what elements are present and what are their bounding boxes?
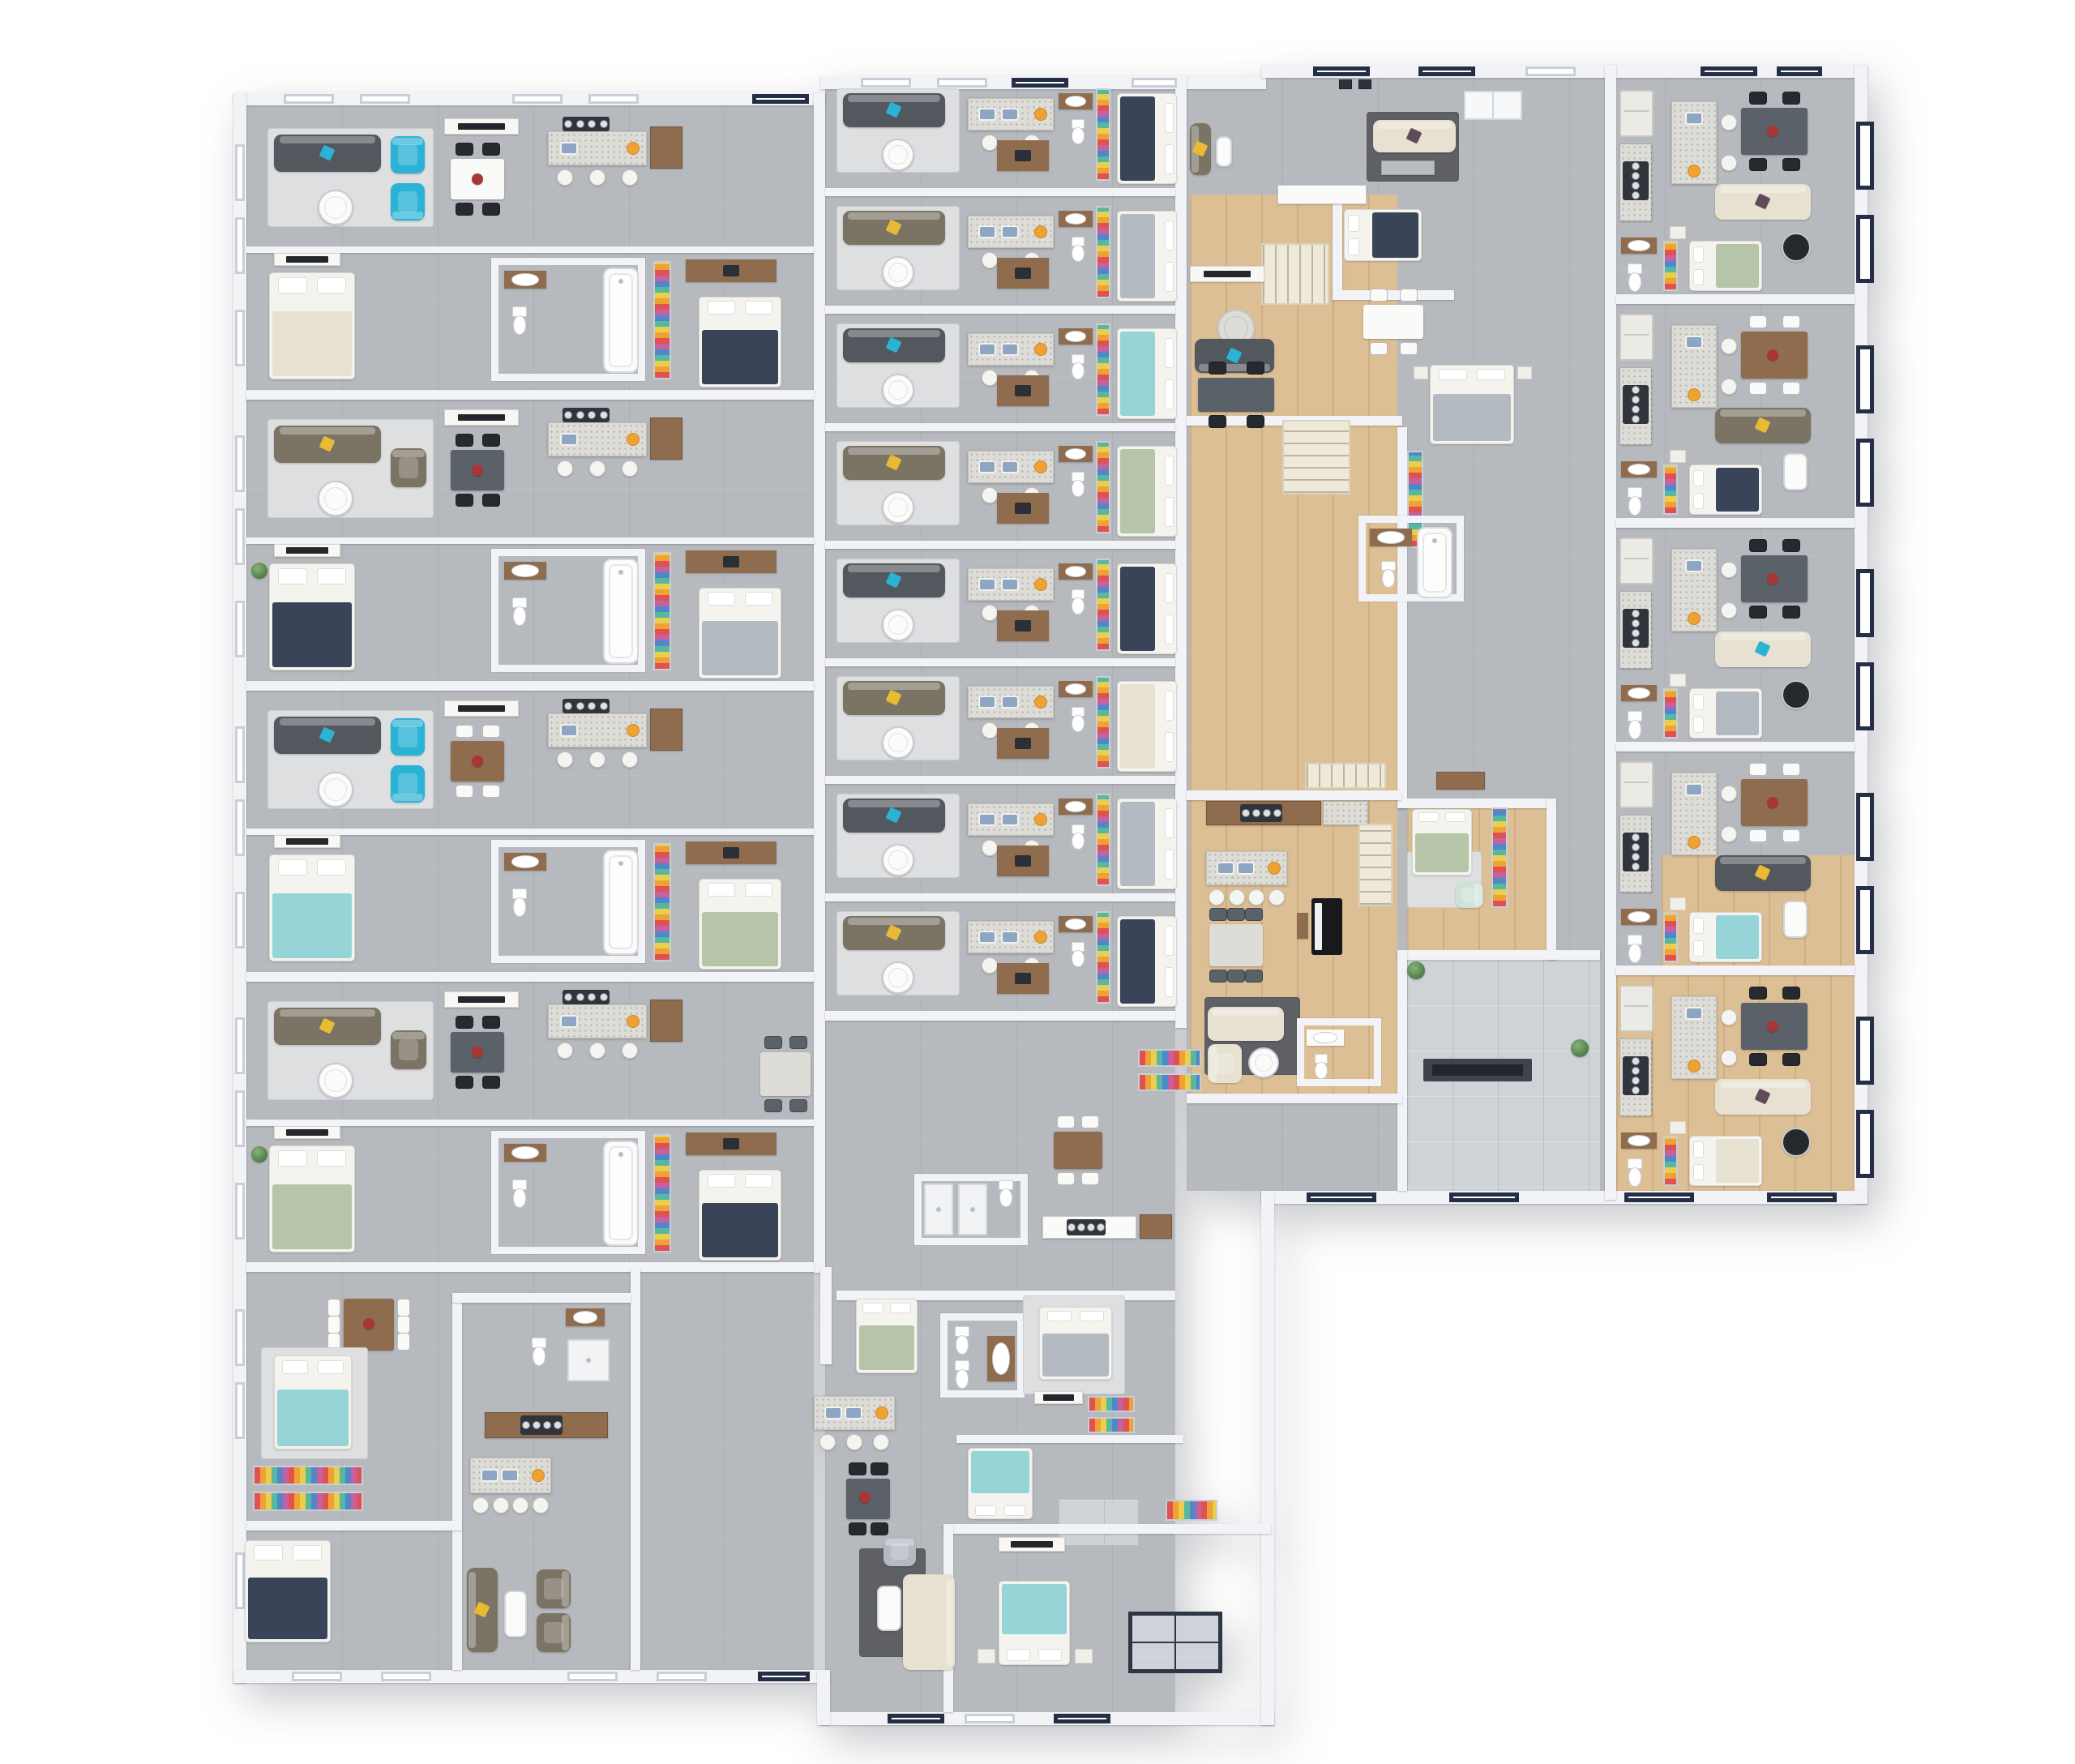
window	[1856, 793, 1874, 861]
nightstand	[1670, 1121, 1686, 1134]
nightstand	[1670, 226, 1686, 239]
bed	[1117, 916, 1177, 1007]
armchair	[1208, 1044, 1242, 1083]
cooktop	[563, 408, 610, 422]
tv-console	[274, 1126, 340, 1139]
wall	[1187, 790, 1401, 800]
wardrobe	[1464, 91, 1522, 120]
wall	[1616, 294, 1855, 304]
decor-accent	[859, 1492, 871, 1503]
window	[657, 1672, 707, 1681]
kitchen-island	[968, 568, 1054, 601]
closet-rack	[1663, 688, 1678, 739]
bed	[1412, 809, 1472, 876]
bed	[1344, 209, 1422, 261]
kitchen-island	[1671, 325, 1717, 408]
wall	[1616, 742, 1855, 751]
kitchen-island	[814, 1396, 895, 1430]
kitchen-island	[968, 98, 1054, 131]
desk	[686, 259, 777, 282]
wall	[825, 893, 1175, 901]
toilet	[509, 306, 530, 336]
sofa	[274, 717, 381, 754]
closet-rack	[1138, 1073, 1201, 1091]
kitchen-island	[548, 131, 647, 165]
window	[1307, 1192, 1376, 1202]
window	[1777, 66, 1822, 76]
dining-table	[760, 1052, 811, 1096]
vanity	[1370, 529, 1412, 546]
toilet	[509, 888, 530, 918]
sofa	[903, 1574, 955, 1670]
sofa	[1208, 1007, 1284, 1041]
dining-table	[1198, 378, 1274, 412]
kitchen-counter	[650, 1000, 682, 1042]
plant	[251, 563, 267, 579]
closet-rack	[1096, 441, 1110, 533]
window	[1012, 78, 1068, 88]
bed	[699, 879, 781, 970]
fridge	[1619, 985, 1654, 1032]
wall	[1605, 65, 1616, 1200]
wall	[825, 423, 1175, 431]
closet-rack	[1096, 559, 1110, 651]
window	[1856, 1017, 1874, 1085]
window	[861, 78, 911, 88]
piano	[1311, 898, 1342, 955]
tv-console	[444, 409, 519, 426]
bed	[1689, 1136, 1762, 1186]
vanity	[504, 271, 546, 289]
bed	[1430, 365, 1514, 444]
nightstand	[1075, 1649, 1093, 1663]
dining-table	[1209, 924, 1263, 966]
desk	[686, 550, 777, 573]
cooktop	[1240, 804, 1282, 822]
window	[235, 435, 245, 492]
sofa	[1715, 184, 1811, 220]
coffee-table	[877, 1586, 901, 1631]
window	[1313, 66, 1370, 76]
round-table	[882, 139, 914, 171]
round-table	[882, 374, 914, 406]
window	[512, 94, 563, 104]
window	[1132, 78, 1177, 88]
sofa	[843, 446, 945, 480]
window	[360, 94, 410, 104]
cooktop	[563, 699, 610, 713]
vanity	[1621, 238, 1657, 254]
bed	[1117, 681, 1177, 772]
round-table	[882, 726, 914, 759]
tv-console	[444, 118, 519, 135]
toilet	[952, 1360, 973, 1389]
bed	[999, 1581, 1070, 1665]
window	[1701, 66, 1757, 76]
window	[235, 310, 245, 366]
wall	[1175, 76, 1187, 1028]
kitchen-island	[968, 333, 1054, 366]
fridge	[1619, 314, 1654, 361]
closet-rack	[253, 1492, 363, 1511]
desk	[997, 846, 1049, 876]
vanity	[1059, 681, 1093, 697]
window	[381, 1672, 431, 1681]
closet-rack	[653, 843, 671, 961]
toilet	[1068, 354, 1088, 380]
nightstand	[1517, 366, 1532, 379]
window	[1525, 66, 1576, 76]
bed	[1689, 241, 1762, 291]
plant	[1407, 961, 1425, 979]
round-table	[1782, 1128, 1811, 1157]
sofa	[843, 681, 945, 715]
window	[235, 726, 245, 783]
armchair	[391, 1030, 426, 1069]
bathtub	[603, 268, 639, 373]
tv-console	[1436, 772, 1485, 790]
bed	[699, 1170, 781, 1261]
bathtub	[603, 1141, 639, 1246]
wall	[1547, 799, 1556, 960]
bed	[269, 272, 355, 379]
decor-accent	[472, 465, 483, 476]
closet-rack	[1096, 676, 1110, 769]
bed	[274, 1355, 352, 1449]
cooktop	[1623, 1056, 1649, 1095]
sofa	[843, 563, 945, 597]
glass-patio	[1128, 1612, 1222, 1673]
window	[1767, 1192, 1837, 1202]
vanity	[1059, 916, 1093, 932]
fridge	[1619, 537, 1654, 584]
wall	[246, 1521, 462, 1531]
wall	[943, 1524, 1271, 1534]
toilet	[1378, 561, 1399, 589]
decor-accent	[1767, 126, 1778, 137]
bed	[1117, 799, 1177, 889]
wall	[820, 1267, 832, 1364]
wall-art	[1339, 79, 1352, 89]
tv-console	[444, 700, 519, 717]
staircase	[1261, 243, 1329, 305]
toilet	[1068, 824, 1088, 850]
wall	[246, 1120, 814, 1126]
wall	[1616, 518, 1855, 528]
bathroom-walls	[1297, 1018, 1381, 1086]
vanity	[504, 562, 546, 580]
sofa	[1190, 123, 1211, 175]
tv-console	[274, 253, 340, 266]
sofa	[843, 211, 945, 245]
bed	[245, 1540, 331, 1642]
kitchen-island	[1671, 101, 1717, 184]
bathtub	[1417, 527, 1452, 598]
sofa	[274, 1008, 381, 1045]
sofa	[274, 426, 381, 463]
wall	[825, 658, 1175, 666]
nightstand	[1670, 674, 1686, 687]
window	[235, 1090, 245, 1147]
window	[235, 144, 245, 201]
armchair	[537, 1569, 571, 1608]
bed	[269, 563, 355, 670]
wall	[246, 537, 814, 544]
closet-rack	[1663, 465, 1678, 515]
nightstand	[1670, 897, 1686, 910]
window	[1856, 439, 1874, 507]
window	[1856, 215, 1874, 283]
round-table	[1782, 680, 1811, 709]
closet-rack	[653, 552, 671, 670]
sofa	[843, 328, 945, 362]
armchair	[883, 1537, 916, 1566]
wall-art	[1358, 79, 1371, 89]
kitchen-island	[548, 1004, 647, 1038]
nightstand	[1414, 366, 1428, 379]
sofa	[1715, 632, 1811, 667]
closet-rack	[653, 1134, 671, 1252]
decor-accent	[1767, 797, 1778, 808]
desk	[997, 728, 1049, 759]
window	[1856, 662, 1874, 730]
bed	[1117, 563, 1177, 654]
vanity	[987, 1336, 1015, 1381]
kitchen-island	[1671, 549, 1717, 632]
window	[1856, 886, 1874, 954]
sofa	[1715, 1079, 1811, 1115]
tv-console	[999, 1537, 1065, 1552]
toilet	[1068, 119, 1088, 145]
decor-accent	[363, 1318, 374, 1329]
wall	[1397, 799, 1556, 808]
dining-table	[1363, 305, 1423, 339]
wall	[956, 1435, 1183, 1443]
round-table	[882, 256, 914, 289]
toilet	[1068, 707, 1088, 733]
bed	[856, 1299, 918, 1373]
wall	[631, 1267, 640, 1670]
sofa	[467, 1568, 498, 1652]
cooktop	[1623, 833, 1649, 871]
round-table	[882, 491, 914, 524]
fridge	[1619, 761, 1654, 808]
armchair	[391, 136, 425, 173]
bed	[1689, 688, 1762, 739]
decor-accent	[472, 173, 483, 185]
desk	[686, 841, 777, 864]
sofa	[1715, 855, 1811, 891]
window	[235, 1552, 245, 1609]
wall	[817, 1670, 830, 1725]
wall	[246, 972, 814, 982]
vanity	[1307, 1030, 1344, 1046]
bed	[269, 854, 355, 961]
vanity	[566, 1308, 605, 1326]
decor-accent	[1767, 1021, 1778, 1032]
window	[965, 1714, 1015, 1723]
round-table	[318, 190, 353, 225]
decor-accent	[1767, 573, 1778, 584]
tv-console	[1034, 1391, 1083, 1404]
toilet	[1068, 942, 1088, 968]
vanity	[1621, 461, 1657, 477]
wall	[1397, 427, 1407, 808]
window	[588, 94, 639, 104]
cooktop	[1067, 1219, 1106, 1235]
tv-console	[1381, 161, 1435, 175]
vanity	[1059, 446, 1093, 462]
decor-accent	[472, 1047, 483, 1058]
bathtub	[603, 559, 639, 664]
vanity	[1059, 211, 1093, 227]
kitchen-counter	[1277, 185, 1367, 204]
nightstand	[978, 1649, 995, 1663]
window	[888, 1714, 944, 1723]
toilet	[995, 1180, 1016, 1208]
plant	[251, 1146, 267, 1162]
closet-rack	[1663, 241, 1678, 291]
vanity	[1621, 1132, 1657, 1149]
wall	[825, 188, 1175, 196]
window	[758, 1672, 810, 1681]
shower	[924, 1184, 953, 1235]
round-table	[1248, 1047, 1279, 1078]
vanity	[1621, 685, 1657, 701]
window	[937, 78, 987, 88]
closet-rack	[1138, 1049, 1201, 1067]
window	[1054, 1714, 1110, 1723]
toilet	[528, 1338, 550, 1367]
wall	[246, 1262, 814, 1272]
round-table	[882, 844, 914, 876]
window	[1856, 122, 1874, 190]
wall	[825, 541, 1175, 549]
closet-rack	[1096, 88, 1110, 181]
bed	[1039, 1307, 1112, 1380]
window	[235, 892, 245, 948]
toilet	[1068, 589, 1088, 615]
wall	[246, 681, 814, 691]
sofa	[843, 799, 945, 833]
wall	[825, 776, 1175, 784]
closet-rack	[1088, 1417, 1135, 1433]
vanity	[1621, 909, 1657, 925]
piano-bench	[1297, 913, 1308, 939]
sofa	[274, 135, 381, 172]
armchair	[391, 765, 425, 803]
coffee-table	[1783, 453, 1808, 490]
window	[235, 1382, 245, 1439]
toilet	[1624, 711, 1645, 740]
toilet	[1624, 487, 1645, 516]
wall	[1333, 203, 1342, 296]
kitchen-island	[968, 921, 1054, 953]
round-table	[1782, 233, 1811, 262]
staircase	[1305, 763, 1386, 789]
window	[235, 601, 245, 657]
sofa	[843, 93, 945, 127]
media-wall	[1423, 1059, 1532, 1081]
closet-rack	[1096, 323, 1110, 416]
window	[284, 94, 334, 104]
toilet	[1068, 237, 1088, 263]
bed	[1689, 465, 1762, 515]
closet-rack	[1663, 1136, 1678, 1186]
cooktop	[1623, 609, 1649, 648]
sofa	[1373, 120, 1456, 152]
bed	[699, 588, 781, 679]
coffee-table	[1783, 901, 1808, 938]
vanity	[504, 1144, 546, 1162]
wall	[1187, 1094, 1402, 1103]
closet-rack	[1096, 794, 1110, 886]
closet-rack	[653, 261, 671, 379]
window	[1856, 345, 1874, 413]
desk	[997, 610, 1049, 641]
window	[292, 1672, 342, 1681]
shower	[958, 1184, 987, 1235]
round-table	[318, 772, 353, 807]
window	[1449, 1192, 1519, 1202]
plant	[1571, 1039, 1589, 1057]
desk	[686, 1132, 777, 1155]
bed	[269, 1145, 355, 1252]
tv-console	[274, 544, 340, 557]
coffee-table	[1216, 136, 1232, 167]
closet-rack	[1491, 807, 1508, 908]
decor-accent	[472, 756, 483, 767]
kitchen-island	[968, 803, 1054, 836]
desk	[997, 493, 1049, 524]
window	[1856, 1110, 1874, 1178]
nightstand	[1670, 450, 1686, 463]
round-table	[318, 1063, 353, 1098]
cooktop	[520, 1415, 563, 1435]
tv-console	[274, 835, 340, 848]
window	[567, 1672, 618, 1681]
wall	[825, 1011, 1175, 1021]
armchair	[391, 718, 425, 756]
closet-rack	[1096, 206, 1110, 298]
round-table	[882, 961, 914, 994]
kitchen-island	[548, 713, 647, 747]
kitchen-island	[968, 686, 1054, 718]
kitchen-island	[1206, 851, 1287, 885]
decor-accent	[1767, 349, 1778, 361]
bed	[1117, 446, 1177, 537]
wall	[825, 306, 1175, 314]
bed	[699, 297, 781, 387]
wall	[246, 246, 814, 253]
window	[235, 799, 245, 856]
wall	[452, 1293, 631, 1303]
wall	[1397, 950, 1600, 960]
window	[235, 1183, 245, 1240]
wall	[1333, 290, 1454, 300]
window	[235, 1309, 245, 1366]
cooktop	[563, 117, 610, 131]
kitchen-counter	[650, 709, 682, 751]
desk	[997, 258, 1049, 289]
toilet	[1624, 935, 1645, 964]
vanity	[1059, 799, 1093, 815]
closet-rack	[1663, 912, 1678, 962]
toilet	[952, 1326, 973, 1355]
armchair	[391, 448, 426, 487]
desk	[997, 963, 1049, 994]
sofa	[1715, 408, 1811, 443]
